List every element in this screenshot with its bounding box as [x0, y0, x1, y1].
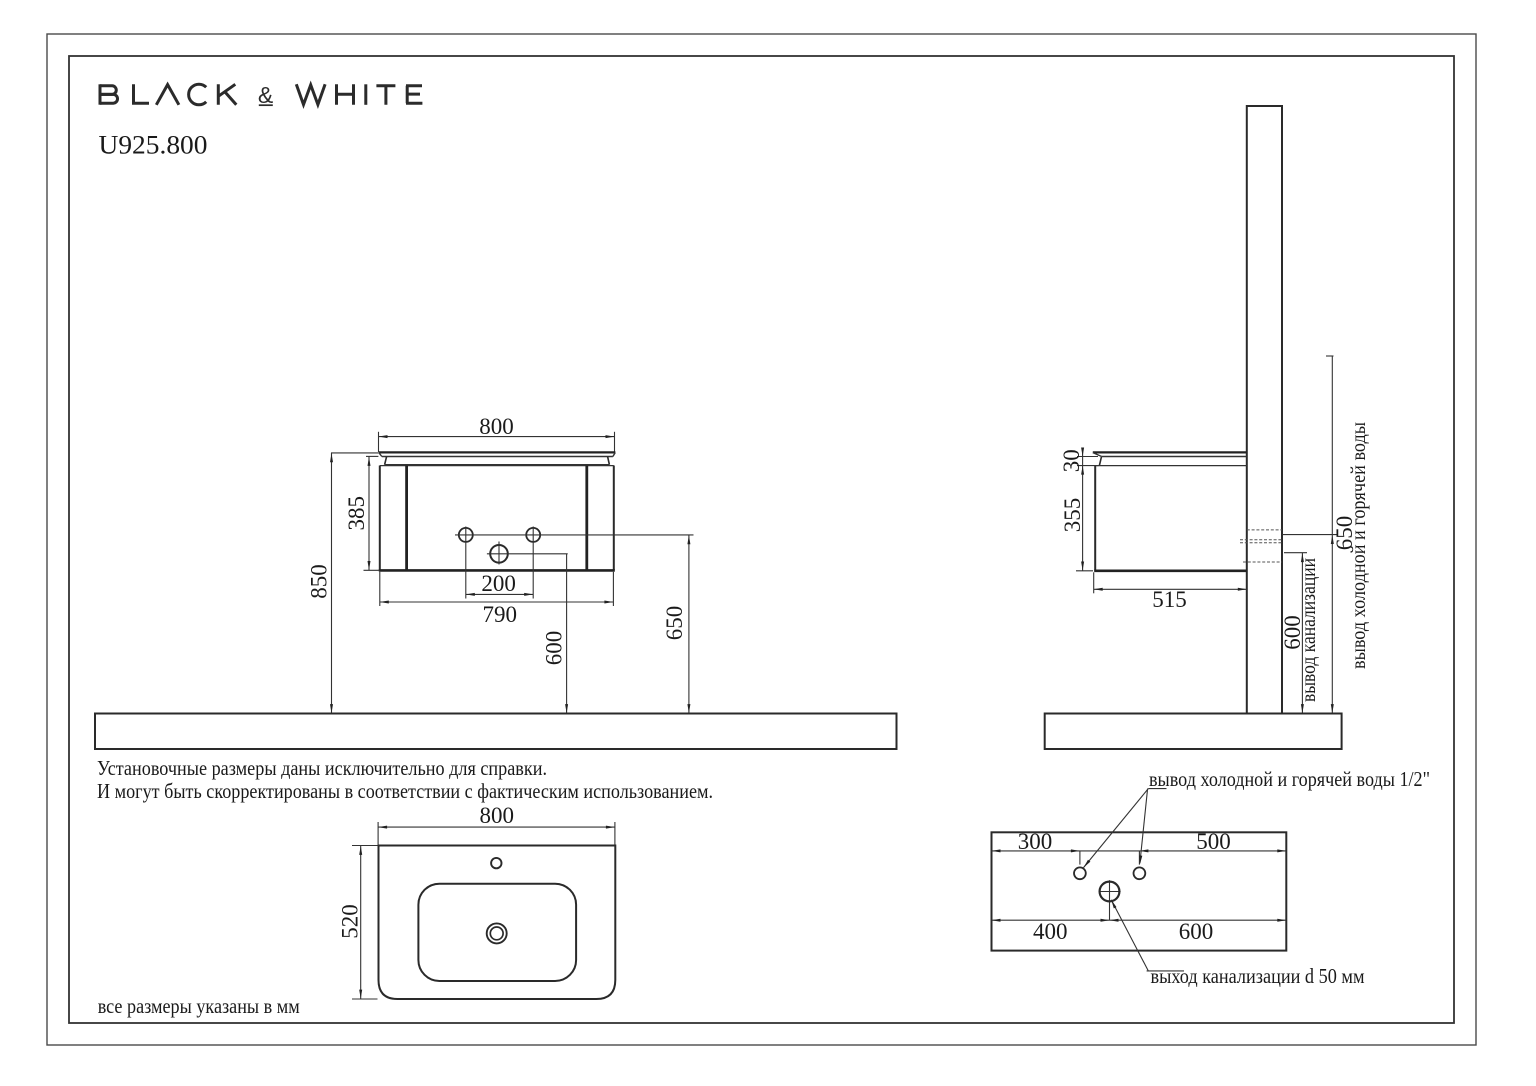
svg-text:600: 600 — [1179, 919, 1214, 944]
svg-text:все размеры указаны в мм: все размеры указаны в мм — [98, 994, 300, 1018]
svg-text:385: 385 — [344, 496, 369, 531]
svg-text:U925.800: U925.800 — [99, 131, 208, 160]
svg-text:400: 400 — [1033, 919, 1068, 944]
svg-text:выход канализации d 50 мм: выход канализации d 50 мм — [1151, 964, 1365, 988]
svg-text:520: 520 — [337, 904, 362, 939]
svg-text:300: 300 — [1018, 829, 1053, 854]
svg-text:500: 500 — [1196, 829, 1231, 854]
svg-text:вывод холодной и горячей воды: вывод холодной и горячей воды — [1346, 422, 1370, 669]
svg-text:790: 790 — [483, 602, 518, 627]
svg-text:&: & — [258, 82, 273, 108]
svg-text:800: 800 — [479, 803, 514, 828]
svg-text:И могут быть скорректированы в: И могут быть скорректированы в соответст… — [97, 779, 713, 803]
svg-text:вывод канализации: вывод канализации — [1296, 558, 1320, 702]
svg-text:вывод холодной и горячей воды: вывод холодной и горячей воды 1/2" — [1149, 767, 1430, 791]
svg-text:355: 355 — [1060, 498, 1085, 533]
svg-text:Установочные размеры даны искл: Установочные размеры даны исключительно … — [97, 756, 547, 780]
svg-text:600: 600 — [541, 631, 566, 666]
svg-text:515: 515 — [1152, 587, 1187, 612]
svg-text:30: 30 — [1059, 449, 1084, 472]
svg-text:650: 650 — [662, 606, 687, 641]
svg-text:800: 800 — [479, 414, 514, 439]
svg-text:200: 200 — [481, 571, 516, 596]
svg-text:850: 850 — [306, 564, 331, 599]
